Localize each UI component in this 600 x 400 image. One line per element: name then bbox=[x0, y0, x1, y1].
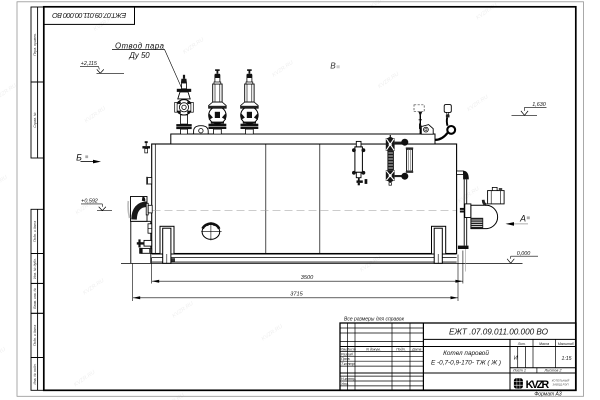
svg-text:Формат А3: Формат А3 bbox=[534, 391, 562, 397]
svg-text:Инв. № подл.: Инв. № подл. bbox=[33, 363, 37, 384]
svg-text:Масса: Масса bbox=[539, 342, 549, 346]
svg-text:Утв.: Утв. bbox=[341, 382, 349, 386]
svg-text:Ду 50: Ду 50 bbox=[128, 51, 150, 60]
svg-text:И: И bbox=[514, 356, 518, 362]
svg-text:ЕЖТ .07.09.011.00.000 ВО: ЕЖТ .07.09.011.00.000 ВО bbox=[449, 328, 549, 337]
svg-text:Подп. и дата: Подп. и дата bbox=[33, 325, 37, 346]
svg-text:Инв. № дубл.: Инв. № дубл. bbox=[33, 258, 37, 279]
svg-text:Все размеры для справок: Все размеры для справок bbox=[344, 317, 405, 323]
svg-text:Подп. и дата: Подп. и дата bbox=[33, 221, 37, 242]
svg-text:KVZR: KVZR bbox=[526, 379, 550, 391]
svg-text:Отвод пара: Отвод пара bbox=[115, 41, 165, 50]
svg-text:Н.контр.: Н.контр. bbox=[341, 377, 356, 381]
svg-text:Б: Б bbox=[76, 153, 82, 163]
svg-text:Дата: Дата bbox=[411, 347, 421, 351]
svg-text:3500: 3500 bbox=[301, 275, 314, 281]
svg-text:Т.контр.: Т.контр. bbox=[341, 362, 356, 366]
svg-text:Взам. инв. №: Взам. инв. № bbox=[33, 287, 37, 308]
svg-text:ЗАВОД РЭП: ЗАВОД РЭП bbox=[552, 383, 569, 387]
svg-text:1:15: 1:15 bbox=[561, 356, 571, 362]
svg-text:А: А bbox=[519, 214, 526, 224]
svg-text:Листов 2: Листов 2 bbox=[544, 369, 563, 373]
svg-text:Разраб.: Разраб. bbox=[341, 352, 354, 356]
svg-text:Справ. №: Справ. № bbox=[33, 112, 37, 128]
svg-text:Лит.: Лит. bbox=[517, 342, 526, 346]
svg-text:В: В bbox=[330, 61, 336, 70]
svg-text:Котел паровой: Котел паровой bbox=[443, 349, 489, 357]
svg-text:3715: 3715 bbox=[290, 291, 303, 297]
svg-text:Лист 1: Лист 1 bbox=[512, 369, 526, 373]
svg-text:ЕЖТ.07.09.011.00.000 ВО: ЕЖТ.07.09.011.00.000 ВО bbox=[52, 11, 126, 20]
svg-text:+0,592: +0,592 bbox=[81, 198, 98, 204]
svg-text:Перв. примен.: Перв. примен. bbox=[33, 33, 37, 56]
svg-text:Масштаб: Масштаб bbox=[558, 342, 574, 346]
svg-text:Пров.: Пров. bbox=[341, 357, 350, 361]
svg-text:Подп.: Подп. bbox=[396, 347, 406, 351]
svg-text:0,000: 0,000 bbox=[517, 251, 531, 257]
svg-text:1,630: 1,630 bbox=[532, 102, 546, 108]
svg-text:Е -0,7-0,9-170- ТЖ ( Ж ): Е -0,7-0,9-170- ТЖ ( Ж ) bbox=[431, 360, 501, 367]
svg-text:N докум.: N докум. bbox=[366, 347, 381, 351]
svg-text:Лист: Лист bbox=[346, 347, 356, 351]
